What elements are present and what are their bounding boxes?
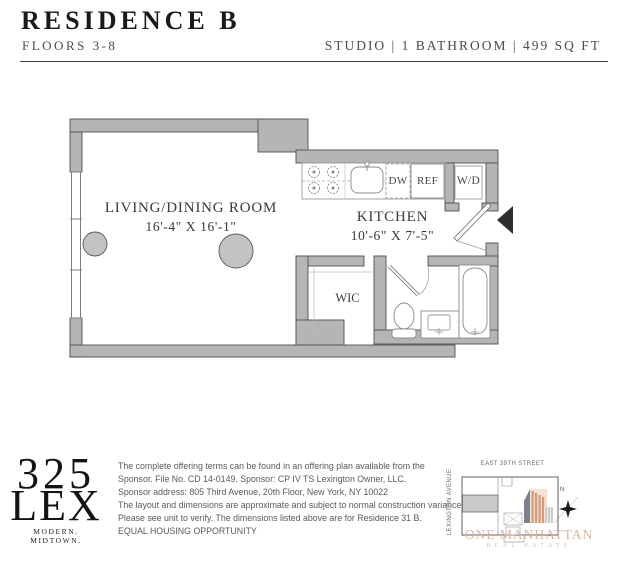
entry-door <box>454 203 513 251</box>
windows <box>70 172 82 318</box>
watermark-brand: ONE MANHATTAN <box>463 527 595 543</box>
columns <box>83 232 253 268</box>
column-icon <box>83 232 107 256</box>
watermark-sub: REAL ESTATE <box>479 542 579 549</box>
toilet-icon <box>392 303 416 338</box>
living-room-label: LIVING/DINING ROOM <box>96 200 286 217</box>
logo-name: LEX <box>10 489 102 522</box>
avenue-label: LEXINGTON AVENUE <box>447 457 455 547</box>
unit-highlight <box>463 495 499 512</box>
street-label: EAST 39TH STREET <box>465 461 560 467</box>
kitchen-label: KITCHEN <box>330 209 455 226</box>
building-logo: 325 LEX MODERN. MIDTOWN. <box>10 458 102 545</box>
refrigerator-label: REF <box>411 175 444 187</box>
vanity-sink-icon <box>421 311 459 338</box>
disclaimer-line: Sponsor address: 805 Third Avenue, 20th … <box>118 486 458 499</box>
disclaimer-line: The layout and dimensions are approximat… <box>118 499 458 512</box>
bathtub-icon <box>459 265 490 338</box>
floorplan-page: RESIDENCE B FLOORS 3-8 STUDIO | 1 BATHRO… <box>0 0 629 579</box>
disclaimer-line: Please see unit to verify. The dimension… <box>118 512 458 525</box>
wic-label: WIC <box>325 291 370 306</box>
dishwasher-label: DW <box>386 175 410 187</box>
north-label: N <box>560 487 564 493</box>
tower-illustration-icon <box>524 489 553 523</box>
entry-marker-icon <box>497 206 513 234</box>
living-room-dimensions: 16'-4" X 16'-1" <box>96 219 286 235</box>
washer-dryer-label: W/D <box>452 175 485 187</box>
offering-disclaimer: The complete offering terms can be found… <box>118 460 458 539</box>
column-icon <box>219 234 253 268</box>
disclaimer-line: The complete offering terms can be found… <box>118 460 458 473</box>
kitchen-dimensions: 10'-6" X 7'-5" <box>330 228 455 244</box>
bathroom-door <box>388 265 429 296</box>
disclaimer-line: Sponsor. File No. CD 14-0149. Sponsor: C… <box>118 473 458 486</box>
disclaimer-line: EQUAL HOUSING OPPORTUNITY <box>118 525 458 538</box>
